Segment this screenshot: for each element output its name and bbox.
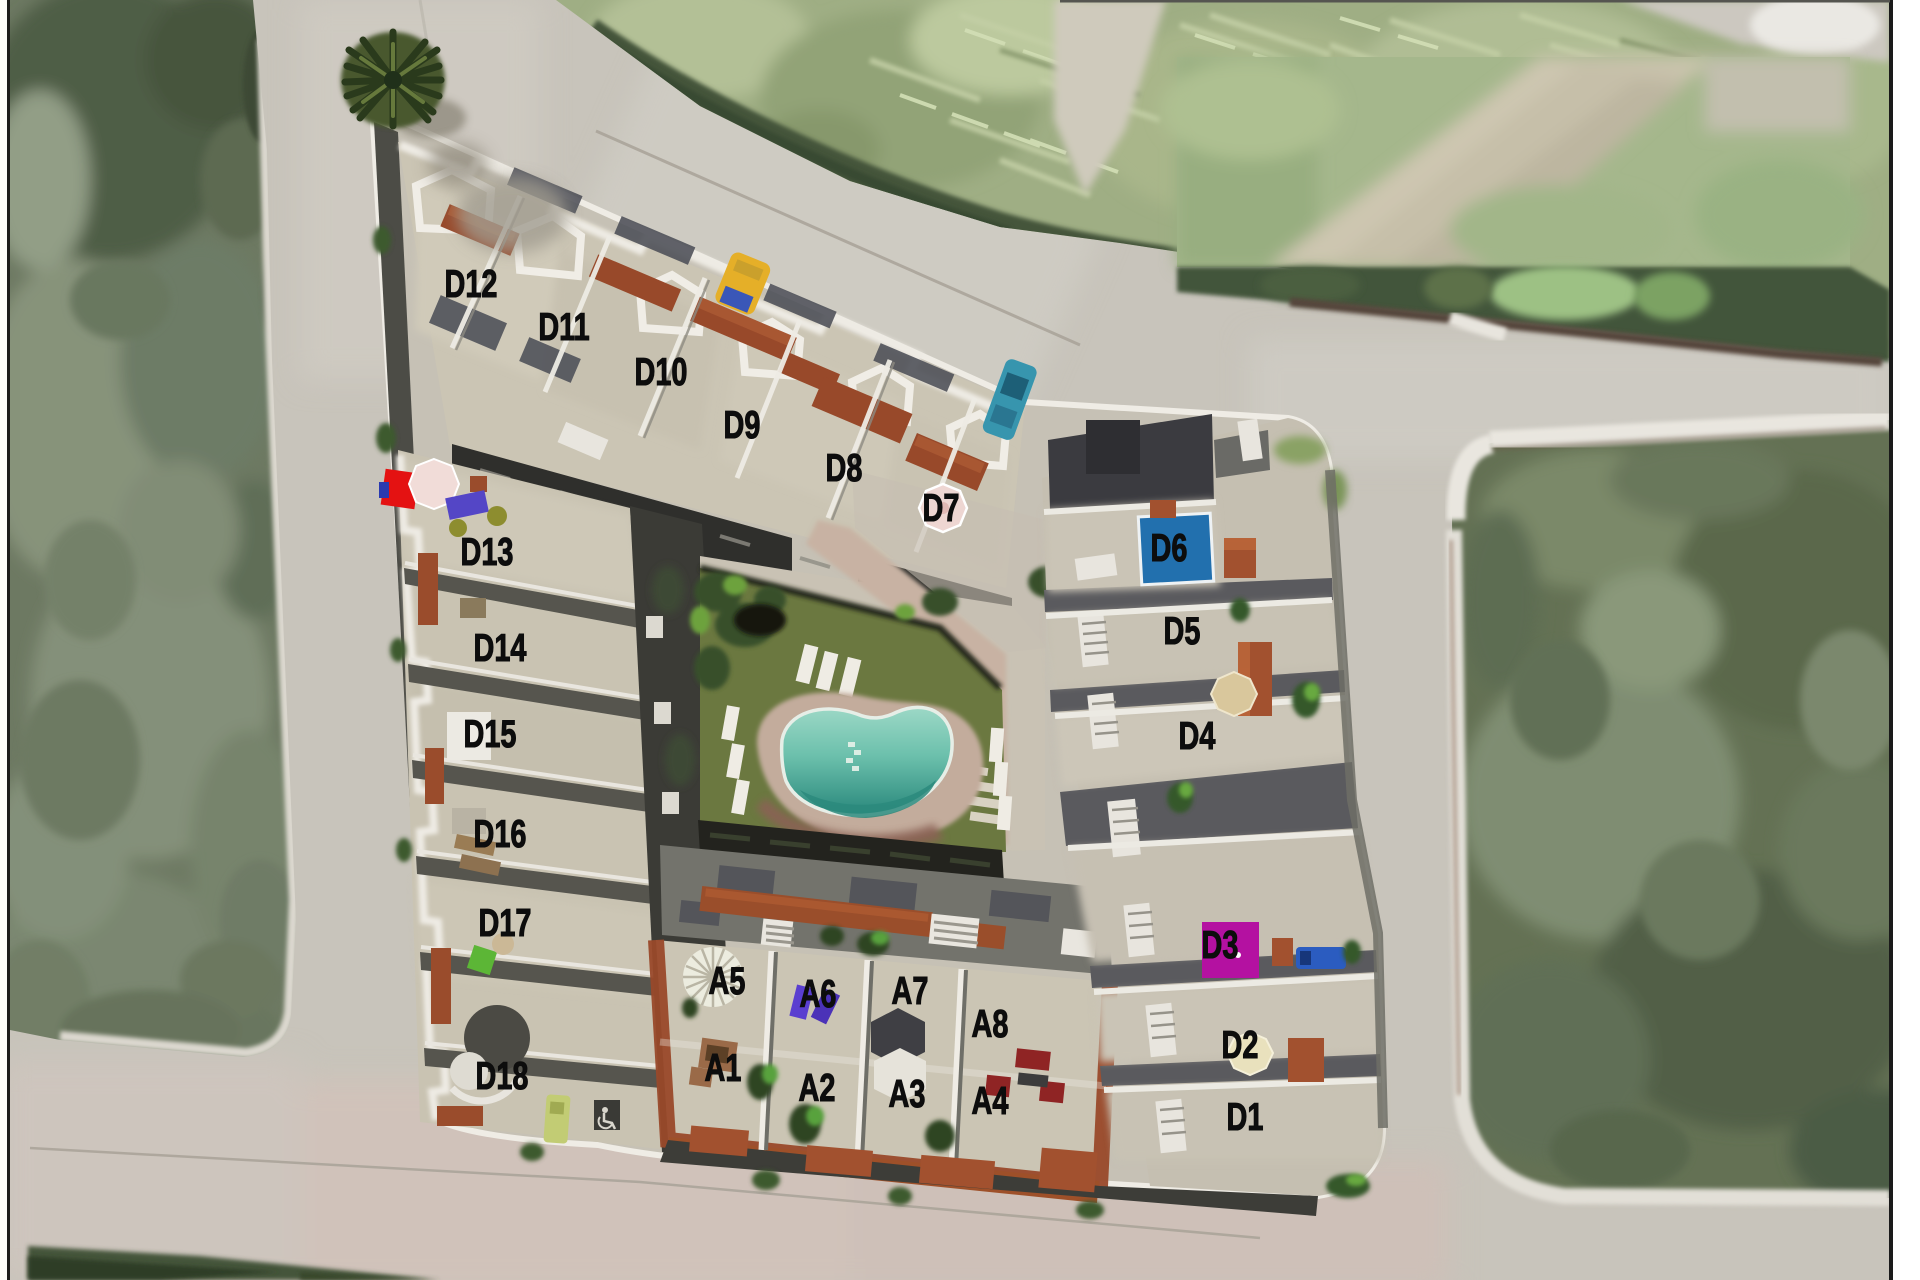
svg-text:A6: A6 — [800, 973, 837, 1016]
svg-text:D4: D4 — [1179, 715, 1216, 758]
svg-text:D5: D5 — [1164, 610, 1201, 653]
svg-text:D14: D14 — [474, 627, 527, 670]
svg-text:D17: D17 — [479, 902, 532, 945]
svg-text:A8: A8 — [972, 1003, 1009, 1046]
svg-text:D2: D2 — [1222, 1024, 1259, 1067]
svg-text:A3: A3 — [889, 1073, 926, 1116]
svg-text:A4: A4 — [972, 1080, 1009, 1123]
svg-text:D18: D18 — [476, 1055, 529, 1098]
svg-text:A5: A5 — [709, 960, 746, 1003]
svg-text:D13: D13 — [461, 531, 514, 574]
svg-text:D6: D6 — [1151, 527, 1188, 570]
svg-text:D16: D16 — [474, 813, 527, 856]
svg-text:D3: D3 — [1202, 924, 1239, 967]
svg-text:A2: A2 — [799, 1067, 836, 1110]
svg-text:D15: D15 — [464, 713, 517, 756]
svg-text:D9: D9 — [724, 404, 761, 447]
svg-text:A7: A7 — [892, 970, 929, 1013]
svg-text:D8: D8 — [826, 447, 863, 490]
svg-text:D12: D12 — [445, 263, 498, 306]
svg-text:D10: D10 — [635, 351, 688, 394]
svg-text:A1: A1 — [705, 1047, 742, 1090]
svg-text:D7: D7 — [923, 487, 960, 530]
svg-text:D1: D1 — [1227, 1096, 1264, 1139]
svg-text:D11: D11 — [538, 306, 589, 349]
